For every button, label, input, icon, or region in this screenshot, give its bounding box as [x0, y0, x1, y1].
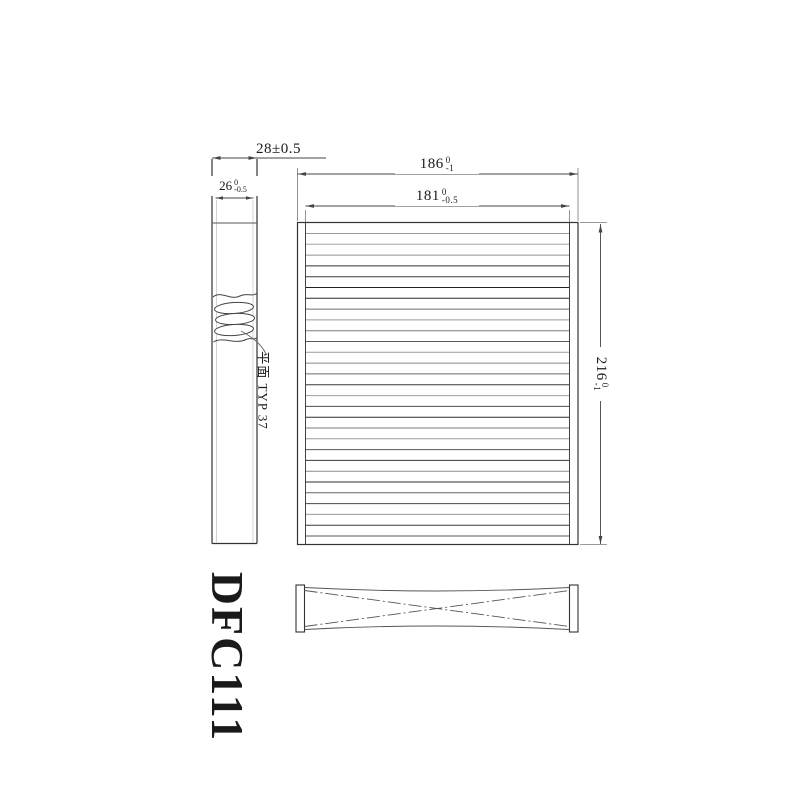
dim-216-tol-upper: 0 — [601, 383, 609, 388]
dim-28-label: 28±0.5 — [256, 141, 301, 157]
part-number: DFC111 — [203, 574, 253, 740]
technical-drawing-sheet: 28±0.5 26 0 -0.5 186 0 -1 181 0 -0.5 216… — [0, 0, 800, 800]
front-view-frame — [298, 223, 579, 545]
dim-186-tol-lower: -1 — [446, 164, 455, 172]
dim-186-label: 186 0 -1 — [395, 154, 479, 174]
dim-181-label: 181 0 -0.5 — [395, 186, 479, 206]
dim-26-label: 26 0 -0.5 — [208, 176, 258, 196]
dim-216-tol-lower: -1 — [593, 383, 601, 392]
side-view-inner-lines — [217, 200, 254, 543]
dim-181-value: 181 — [416, 188, 440, 205]
drawing-linework — [0, 0, 800, 800]
dim-186-value: 186 — [420, 156, 444, 173]
dim-216-value: 216 — [593, 357, 610, 381]
pleat-flat-note: 平面 TYP 37 — [257, 340, 272, 442]
side-view-outline — [212, 159, 257, 544]
dim-26-value: 26 — [219, 178, 232, 194]
pleat-coil-symbol — [213, 294, 257, 343]
dim-181-extension-lines — [306, 210, 570, 222]
dim-26-tol-lower: -0.5 — [234, 186, 247, 194]
dim-216-label: 216 0 -1 — [591, 347, 611, 401]
dim-181-tol-lower: -0.5 — [442, 196, 458, 204]
bottom-view-crossed-centerlines — [305, 591, 570, 627]
